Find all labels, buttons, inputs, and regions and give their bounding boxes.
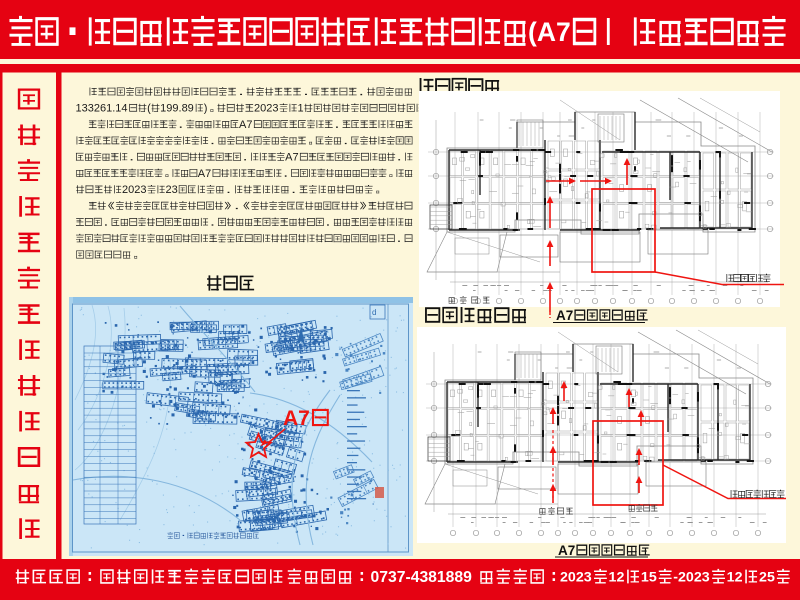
svg-text:A7: A7 [556,308,573,323]
svg-text:0737-4381889: 0737-4381889 [371,569,473,586]
svg-text:-2023: -2023 [673,570,710,586]
svg-text:(: ( [147,103,151,115]
svg-text:A7: A7 [198,168,211,180]
svg-text:2023: 2023 [254,103,278,115]
svg-text:A7: A7 [283,407,310,430]
svg-text:12: 12 [727,570,743,586]
svg-text:A7: A7 [285,152,298,164]
svg-text:1: 1 [298,103,304,115]
svg-text:A7: A7 [558,543,575,558]
svg-text:d: d [372,308,376,317]
svg-text:15: 15 [641,570,657,586]
svg-text:): ) [204,103,208,115]
svg-text:23: 23 [166,184,178,196]
svg-text:2023: 2023 [560,570,592,586]
svg-text:A7: A7 [239,119,252,131]
svg-text:199.89: 199.89 [160,103,194,115]
svg-text:2023: 2023 [122,184,146,196]
svg-text:(A7: (A7 [528,17,571,47]
svg-text:12: 12 [609,570,625,586]
svg-text:25: 25 [759,570,775,586]
svg-text:133261.14: 133261.14 [76,103,128,115]
